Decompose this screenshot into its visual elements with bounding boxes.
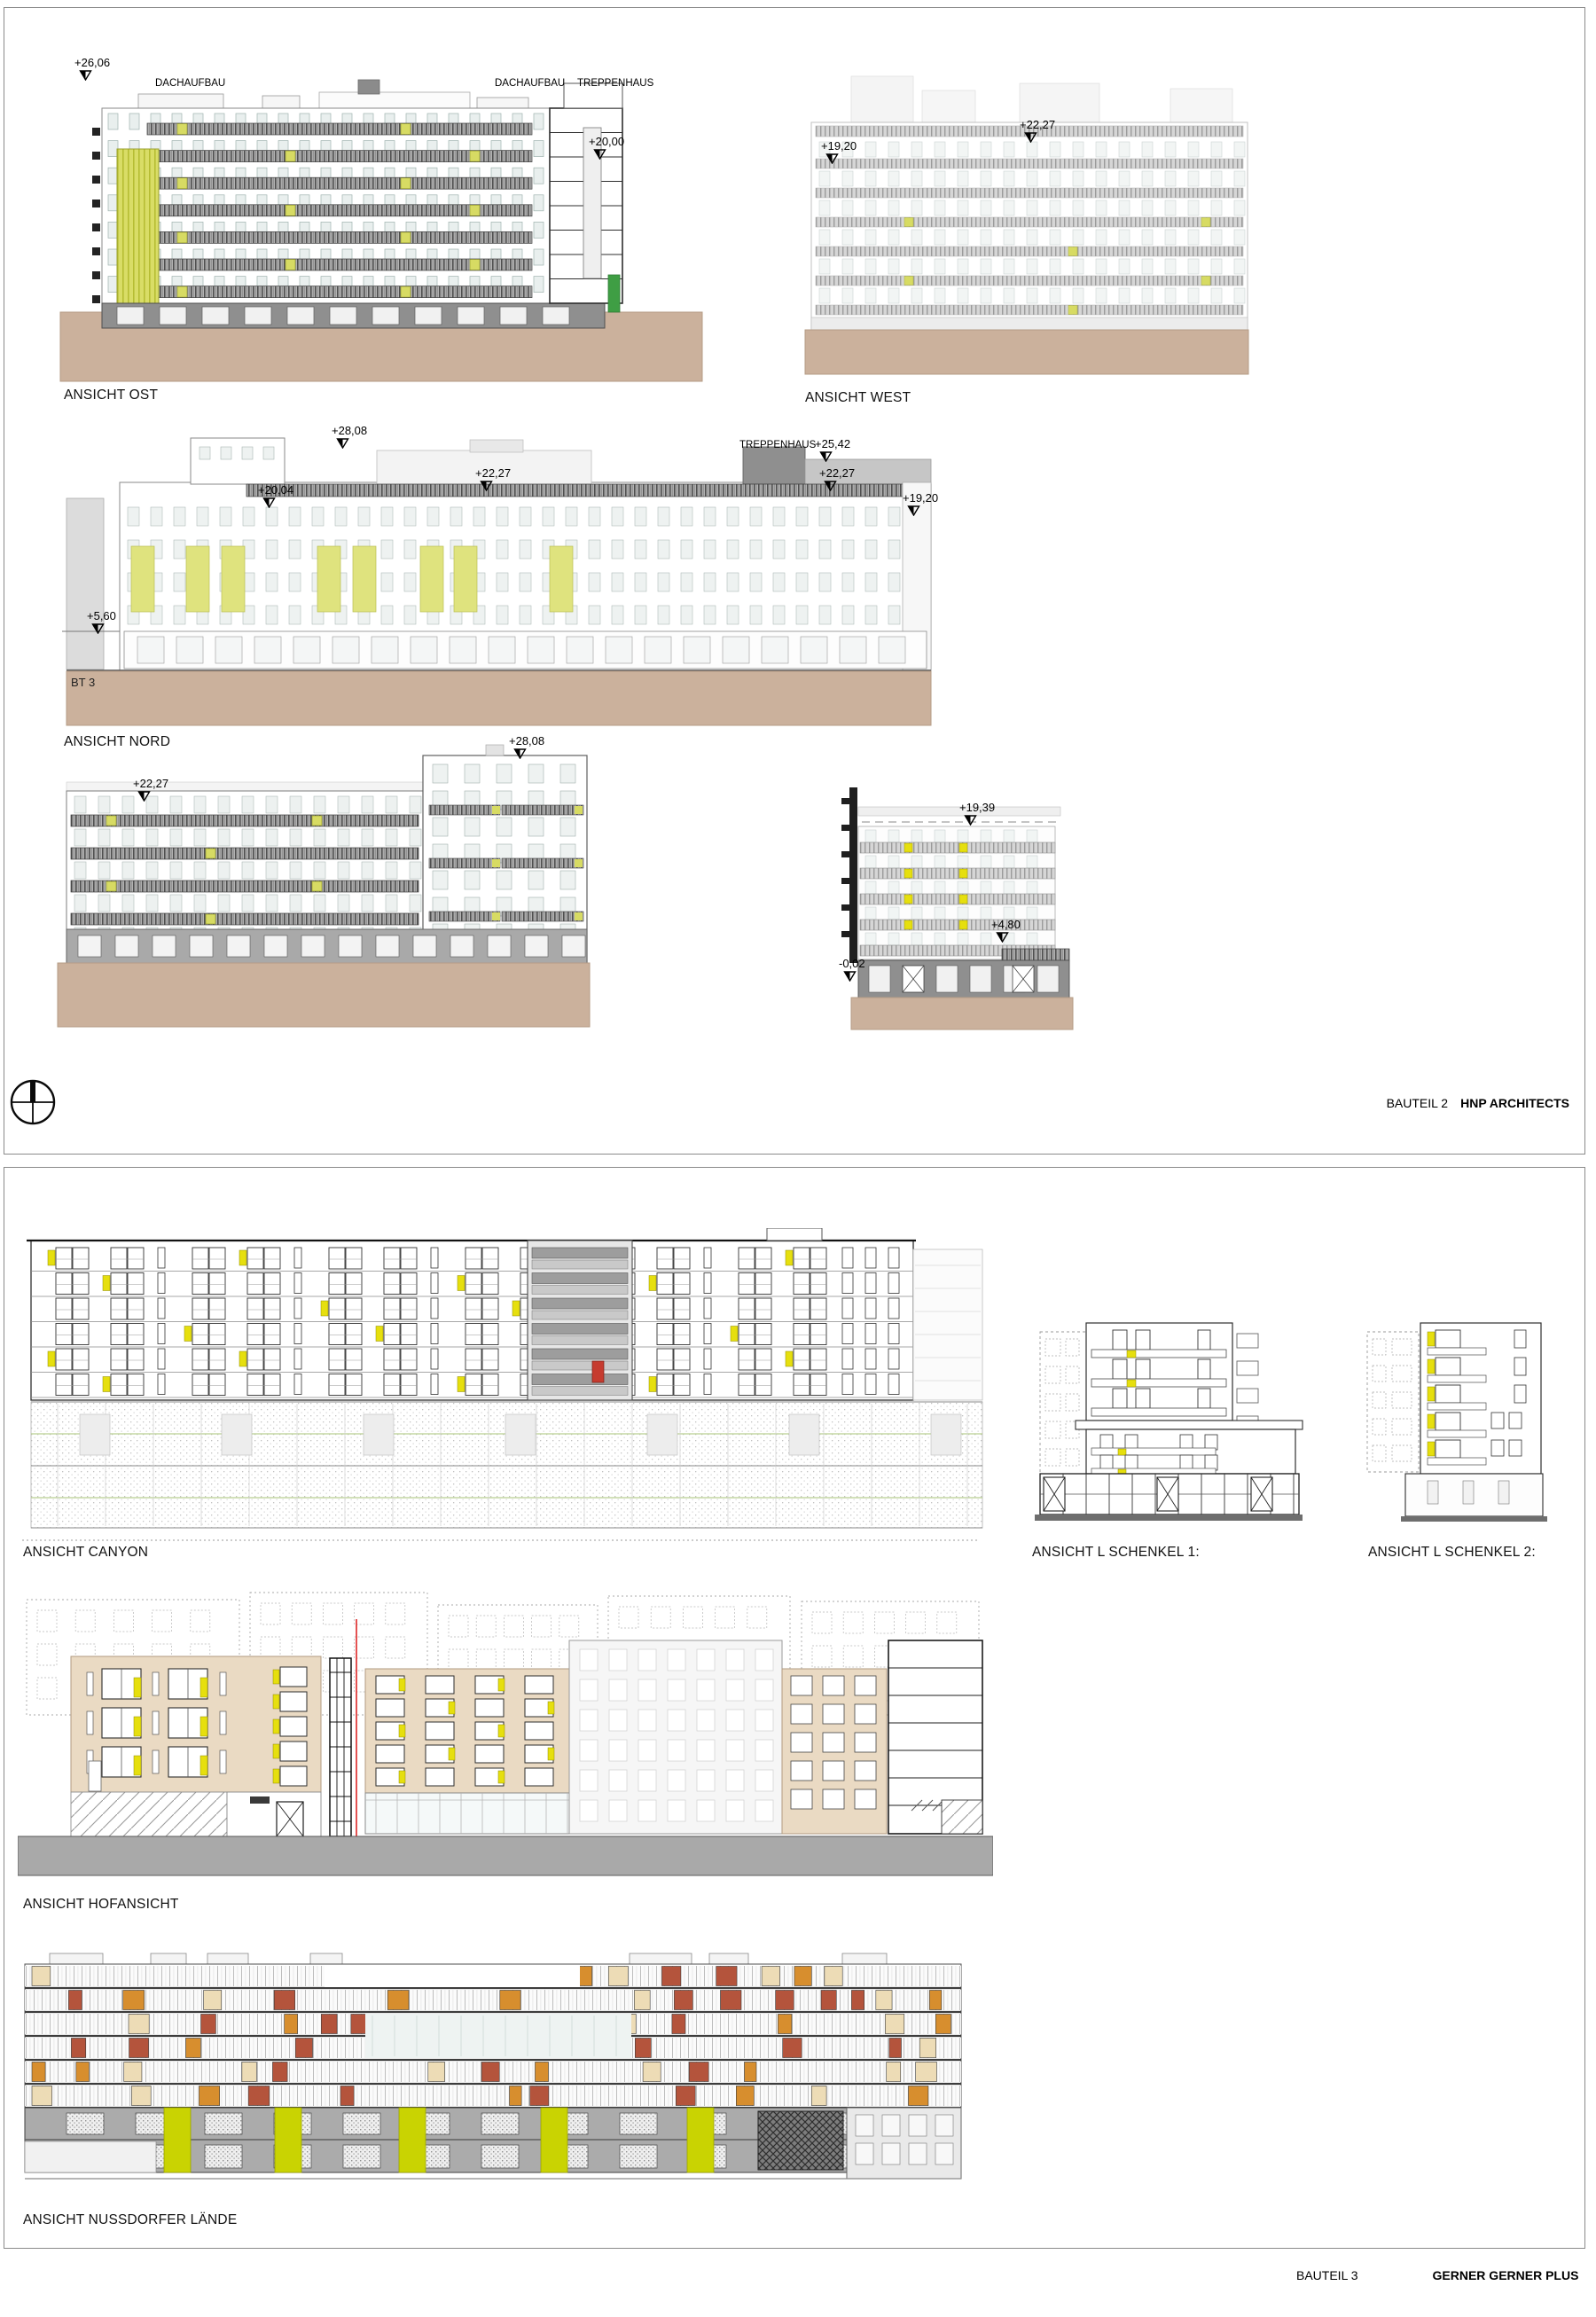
level-triangle-icon [262, 497, 276, 508]
level-value: +20,00 [589, 135, 624, 148]
level-triangle-icon [843, 971, 857, 982]
level-triangle-icon [513, 748, 527, 759]
level-value: +22,27 [133, 777, 168, 790]
level-value: TREPPENHAUS [577, 78, 653, 89]
bauteil3-firm-label: GERNER GERNER PLUS [1433, 2268, 1579, 2282]
level-triangle-icon [907, 505, 920, 516]
level-value: +22,27 [475, 466, 511, 480]
level-value: +20,04 [258, 483, 293, 497]
bauteil3-part-label: BAUTEIL 3 [1296, 2268, 1358, 2282]
level-value: +19,20 [903, 491, 938, 505]
dachaufbau-note: DACHAUFBAU [495, 78, 565, 89]
level-triangle-icon [79, 70, 92, 81]
level-marker: +19,20 [821, 140, 857, 164]
level-triangle-icon [824, 481, 837, 491]
ansicht-ost-drawing [53, 53, 727, 390]
level-value: DACHAUFBAU [495, 78, 565, 89]
level-triangle-icon [336, 438, 349, 449]
level-marker: +20,00 [589, 136, 624, 160]
ansicht-nussdorfer-drawing [18, 1937, 975, 2203]
level-marker: +28,08 [509, 735, 544, 759]
level-marker: +4,80 [991, 919, 1021, 943]
ansicht-west-label: ANSICHT WEST [805, 390, 911, 406]
ansicht-canyon-label: ANSICHT CANYON [23, 1545, 148, 1561]
level-marker: +20,04 [258, 484, 293, 508]
level-triangle-icon [964, 815, 977, 826]
level-triangle-icon [819, 451, 833, 462]
level-marker: +28,08 [332, 425, 367, 449]
level-value: +26,06 [74, 56, 110, 69]
level-value: +5,60 [87, 609, 116, 622]
ansicht-l-schenkel2-drawing [1357, 1311, 1578, 1548]
ansicht-canyon-drawing [18, 1228, 993, 1547]
level-triangle-icon [996, 932, 1009, 943]
level-value: +28,08 [332, 424, 367, 437]
bauteil2-firm-label: HNP ARCHITECTS [1460, 1096, 1569, 1110]
ansicht-hofansicht-drawing [18, 1587, 993, 1880]
ansicht-nord-label: ANSICHT NORD [64, 734, 170, 750]
level-value: +25,42 [815, 437, 850, 450]
level-value: TREPPENHAUS [739, 440, 816, 450]
level-marker: -0,02 [839, 958, 865, 982]
level-marker: +19,20 [903, 492, 938, 516]
ansicht-ost-label: ANSICHT OST [64, 387, 158, 403]
level-value: +22,27 [819, 466, 855, 480]
dachaufbau-note: DACHAUFBAU [155, 78, 225, 89]
level-value: +19,20 [821, 139, 857, 153]
plan-sheet: { "colors": { "accent_lime": "#d7db63", … [0, 0, 1596, 2317]
treppenhaus-note: TREPPENHAUS [739, 440, 816, 450]
bauteil2-part-label: BAUTEIL 2 [1387, 1096, 1449, 1110]
bauteil2-footer: BAUTEIL 2HNP ARCHITECTS [1387, 1096, 1569, 1110]
level-marker: +22,27 [1020, 119, 1055, 143]
level-value: +22,27 [1020, 118, 1055, 131]
level-value: +19,39 [959, 801, 995, 814]
north-compass-icon [9, 1078, 59, 1128]
ansicht-l-schenkel2-label: ANSICHT L SCHENKEL 2: [1368, 1545, 1536, 1561]
ansicht-hofansicht-label: ANSICHT HOFANSICHT [23, 1897, 179, 1913]
level-value: +4,80 [991, 918, 1021, 931]
level-triangle-icon [91, 623, 105, 634]
ansicht-side-section-drawing [816, 780, 1082, 1037]
level-marker: +25,42 [815, 438, 850, 462]
level-triangle-icon [480, 481, 493, 491]
level-marker: +22,27 [819, 467, 855, 491]
level-marker: +22,27 [133, 778, 168, 802]
level-triangle-icon [593, 149, 606, 160]
level-triangle-icon [1024, 132, 1037, 143]
ansicht-l-schenkel1-label: ANSICHT L SCHENKEL 1: [1032, 1545, 1200, 1561]
bt3-label: BT 3 [71, 676, 95, 689]
ansicht-l-schenkel1-drawing [1024, 1311, 1334, 1548]
treppenhaus-note: TREPPENHAUS [577, 78, 653, 89]
bauteil3-footer: BAUTEIL 3GERNER GERNER PLUS [1296, 2268, 1578, 2282]
level-marker: +19,39 [959, 802, 995, 826]
level-marker: +5,60 [87, 610, 116, 634]
level-value: DACHAUFBAU [155, 78, 225, 89]
ansicht-nussdorfer-label: ANSICHT NUSSDORFER LÄNDE [23, 2212, 237, 2228]
level-value: +28,08 [509, 734, 544, 748]
level-triangle-icon [137, 791, 151, 802]
level-triangle-icon [825, 153, 839, 164]
level-marker: +22,27 [475, 467, 511, 491]
level-value: -0,02 [839, 957, 865, 970]
level-marker: +26,06 [74, 57, 110, 81]
